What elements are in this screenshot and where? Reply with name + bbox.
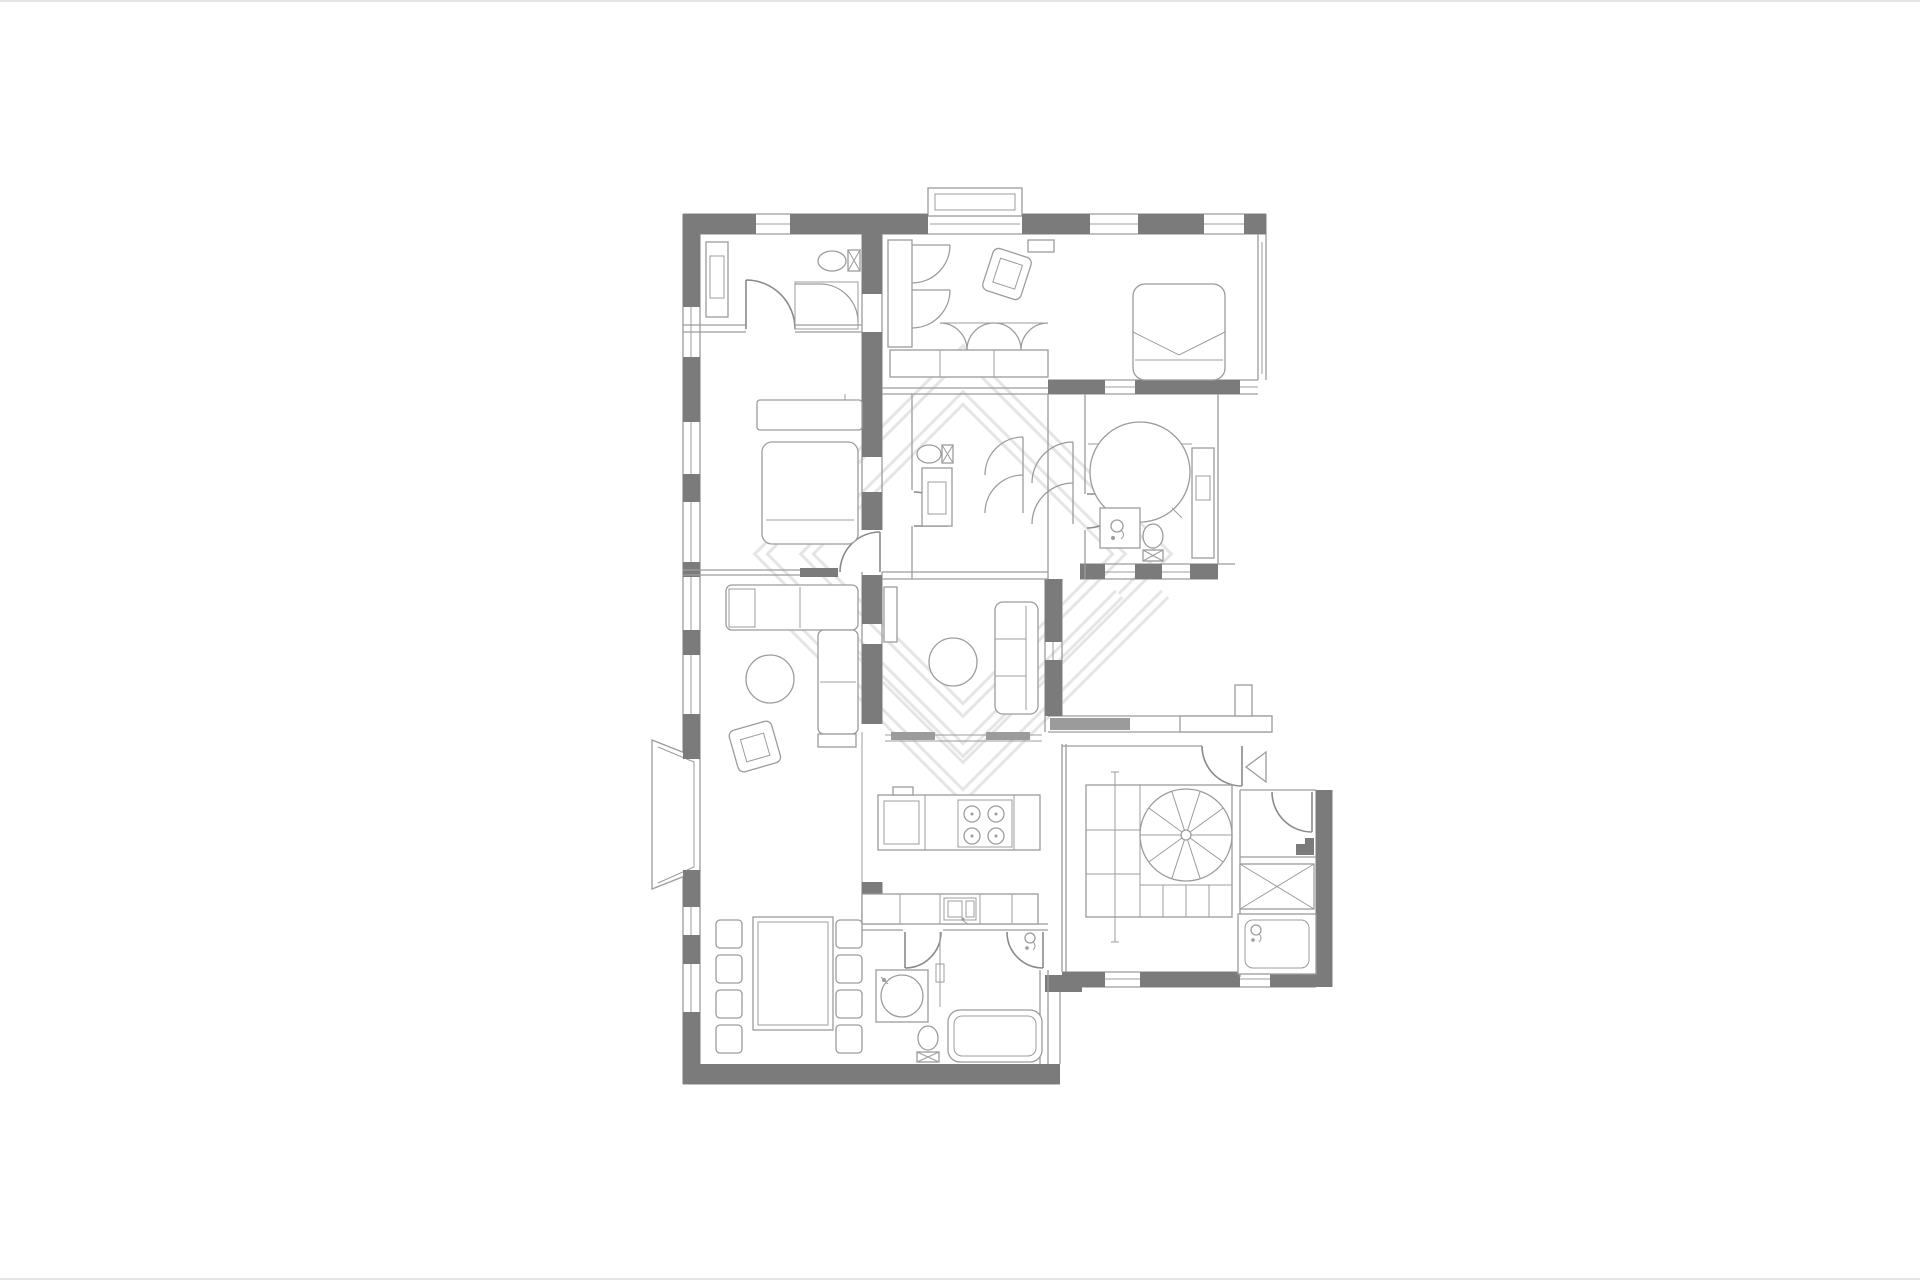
stair-hall bbox=[1086, 772, 1316, 974]
shaft-box bbox=[1240, 864, 1314, 909]
entrance-hall bbox=[706, 242, 860, 317]
living-armchair bbox=[728, 720, 782, 773]
guest-bathroom bbox=[876, 932, 1042, 1062]
family-sofa bbox=[995, 602, 1038, 714]
hall-wardrobe bbox=[706, 242, 728, 317]
bath-cabinet bbox=[1192, 448, 1214, 558]
master-bedroom bbox=[1133, 284, 1225, 380]
washbasin bbox=[876, 970, 928, 1022]
bedroom-bed bbox=[762, 442, 858, 544]
main-bathroom bbox=[1088, 422, 1214, 561]
floor-plan-drawing bbox=[0, 2, 1920, 1280]
gb-toilet bbox=[917, 1026, 939, 1062]
tv-unit bbox=[884, 587, 897, 642]
spiral-staircase bbox=[1086, 785, 1232, 917]
bedroom-desk bbox=[757, 394, 862, 430]
guest-bath-west-door bbox=[905, 932, 941, 968]
north-bay-window bbox=[928, 188, 1022, 216]
bathtub bbox=[948, 1010, 1042, 1062]
master-bed bbox=[1133, 284, 1225, 380]
bath-toilet bbox=[1143, 524, 1163, 561]
step-block bbox=[1296, 838, 1314, 855]
main-entry-door bbox=[1202, 746, 1266, 786]
west-bay-window bbox=[652, 740, 700, 889]
gb-tap bbox=[1025, 933, 1035, 950]
floor-plan-page bbox=[0, 0, 1920, 1280]
hall-toilet bbox=[818, 250, 860, 271]
kitchen-counter bbox=[862, 894, 1038, 924]
round-bathtub bbox=[1090, 422, 1190, 522]
bath-sink bbox=[1100, 508, 1140, 548]
wardrobe-run bbox=[890, 323, 1048, 377]
sliding-glass-door bbox=[885, 732, 1042, 741]
dining-table bbox=[753, 917, 833, 1030]
living-room bbox=[726, 585, 858, 773]
bedroom-west bbox=[757, 394, 862, 544]
storage-closet-door bbox=[1272, 792, 1312, 832]
storage-closet bbox=[1296, 838, 1314, 855]
coffee-table bbox=[746, 655, 794, 703]
shower-cabin bbox=[1238, 914, 1316, 974]
sr-vanity bbox=[922, 468, 952, 526]
entry-direction-arrow bbox=[1246, 752, 1266, 782]
wardrobe-column bbox=[888, 240, 950, 347]
closet-armchair bbox=[981, 247, 1033, 301]
corner-sofa bbox=[726, 585, 858, 747]
dining-area bbox=[716, 917, 862, 1053]
sr-toilet bbox=[917, 445, 953, 463]
kitchen-island bbox=[878, 787, 1040, 850]
round-table bbox=[929, 638, 977, 686]
wall-shelf bbox=[1028, 240, 1054, 252]
kitchen bbox=[862, 787, 1040, 924]
hall-closet-door bbox=[795, 282, 858, 329]
entrance-hall-door bbox=[746, 280, 795, 329]
walk-in-closet bbox=[888, 240, 1054, 377]
